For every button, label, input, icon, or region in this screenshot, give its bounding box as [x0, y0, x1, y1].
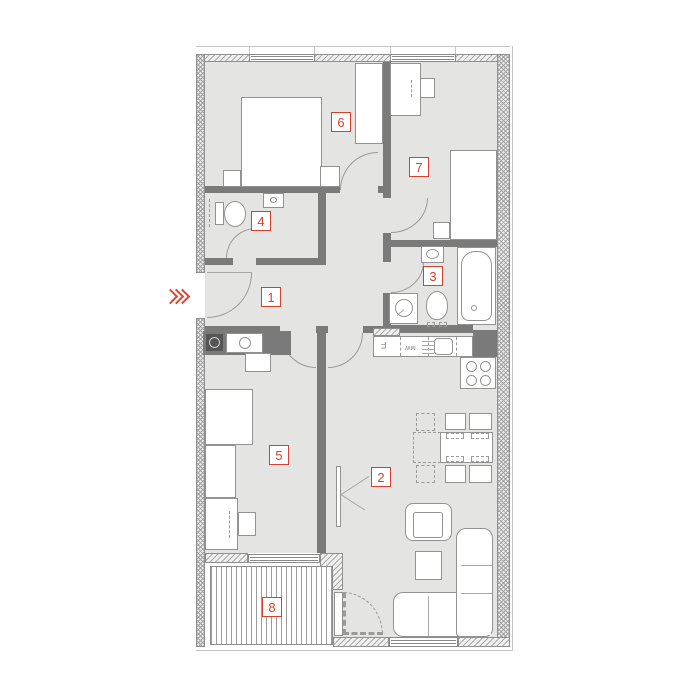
room2-table-tab-4: [471, 456, 489, 462]
room4-toilet-bowl: [224, 201, 246, 227]
room2-table-tab-3: [446, 456, 464, 462]
room3-toilet-dash-1: [427, 322, 435, 327]
room7-chair-dash: [411, 80, 413, 97]
wall-left-lower: [196, 318, 205, 647]
room5-counter-basin: [239, 337, 251, 349]
room3-bathtub-inner: [461, 251, 492, 321]
wall-room4-right: [318, 192, 326, 265]
room3-toilet-bowl: [426, 291, 448, 320]
window-room7: [390, 54, 456, 62]
room6-bed: [241, 97, 322, 187]
room-label-4: 4: [251, 211, 271, 231]
wall-corridor-stub: [383, 192, 391, 198]
room-label-6: 6: [331, 112, 351, 132]
room2-sofa-join: [458, 594, 491, 635]
window-living: [389, 637, 458, 647]
wall-top: [196, 54, 510, 62]
room2-chair-dashed-1: [416, 413, 435, 431]
kitchen-stove: [460, 357, 496, 389]
wall-room4-bottom-a: [205, 258, 233, 265]
room4-sink-basin: [270, 197, 277, 203]
kitchen-burner-3: [466, 375, 477, 386]
sill-tick-3: [390, 47, 391, 54]
room2-chair-4: [469, 465, 492, 483]
room7-bed: [450, 150, 497, 240]
kitchen-fridge-label: F: [381, 340, 387, 350]
room3-toilet-dash-2: [439, 322, 447, 327]
room2-chair-dashed-2: [416, 465, 435, 483]
floor-plan: F MW 1 2 3 4 5 6 7 8: [0, 0, 700, 700]
room7-chair: [420, 78, 435, 98]
wall-corridor-mid: [383, 233, 391, 262]
room-label-3: 3: [423, 266, 443, 286]
sill-line-top: [196, 46, 510, 47]
room6-cabinet: [320, 166, 340, 187]
sill-tick-1: [249, 47, 250, 54]
room-label-2: 2: [371, 467, 391, 487]
balcony-door-leaf: [334, 592, 343, 636]
room5-wardrobe-1: [205, 389, 253, 445]
room5-desk: [205, 498, 238, 550]
wall-balcony-top: [205, 553, 248, 563]
kitchen-dishwasher-hatch: [422, 339, 434, 354]
room-label-7: 7: [409, 157, 429, 177]
kitchen-burner-2: [480, 361, 491, 372]
room2-table-tab-1: [446, 433, 464, 439]
wall-bottom-right: [458, 637, 510, 647]
room2-sofa-divider-3: [461, 593, 492, 594]
kitchen-burner-4: [480, 375, 491, 386]
room5-wardrobe-2: [205, 445, 236, 498]
room7-desk: [390, 63, 421, 116]
kitchen-divider-3: [456, 337, 457, 356]
room2-coffee-table: [415, 551, 442, 580]
room2-armchair-seat: [413, 512, 443, 538]
kitchen-sink: [434, 338, 453, 355]
room5-chair: [238, 512, 256, 536]
room2-chair-2: [469, 413, 492, 430]
room7-nightstand: [433, 222, 450, 239]
room6-wardrobe: [355, 63, 383, 144]
room4-toilet-tank: [215, 202, 224, 225]
room5-under-cabinet: [245, 353, 271, 372]
sill-tick-4: [455, 47, 456, 54]
wall-bottom-left: [333, 637, 389, 647]
kitchen-burner-1: [466, 361, 477, 372]
wall-kitchen-block: [473, 330, 497, 357]
room-label-5: 5: [269, 445, 289, 465]
room2-tv: [336, 466, 341, 527]
kitchen-vent: [373, 328, 400, 336]
window-room5-balcony: [248, 554, 320, 563]
room6-nightstand-left: [223, 170, 241, 187]
room-label-1: 1: [261, 287, 281, 307]
room2-chair-3: [445, 465, 466, 483]
room2-table-tab-2: [471, 433, 489, 439]
wall-right: [497, 54, 510, 647]
wall-room5-room2: [317, 326, 326, 553]
sill-line-bottom: [196, 650, 513, 651]
wall-room4-bottom-b: [256, 258, 326, 265]
room2-table-extension: [413, 432, 441, 463]
room2-sofa-divider-2: [461, 565, 492, 566]
room-label-8: 8: [262, 597, 282, 617]
room5-chair-dash: [229, 511, 231, 538]
kitchen-divider-1: [400, 337, 401, 356]
room5-counter-unit-knob: [209, 337, 220, 348]
room3-sink-basin: [426, 249, 439, 259]
sill-tick-2: [314, 47, 315, 54]
window-room6: [249, 54, 315, 62]
room2-sofa-divider-1: [428, 596, 429, 636]
kitchen-mw-label: MW: [405, 344, 416, 350]
room3-bathtub-drain: [471, 305, 477, 311]
wall-left-upper: [196, 54, 205, 273]
room2-chair-1: [445, 413, 466, 430]
sill-line-right: [512, 46, 513, 651]
